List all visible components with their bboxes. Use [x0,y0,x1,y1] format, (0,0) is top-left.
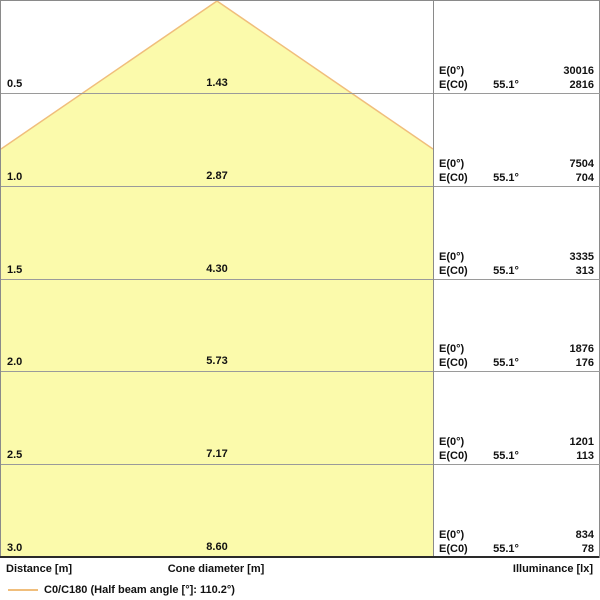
e0-label: E(0°) [439,529,464,541]
distance-value: 0.5 [7,78,22,90]
distance-value: 2.0 [7,356,22,368]
e0-value: 7504 [494,158,594,170]
ec0-value: 78 [494,543,594,555]
cone-diameter-value: 8.60 [117,541,317,553]
distance-value: 3.0 [7,542,22,554]
chart-area: 0.51.43E(0°)30016E(C0)55.1°28161.02.87E(… [0,0,600,558]
cone-diameter-axis-label: Cone diameter [m] [116,563,316,575]
e0-value: 1876 [494,343,594,355]
ec0-value: 176 [494,357,594,369]
cone-diameter-value: 1.43 [117,77,317,89]
e0-value: 1201 [494,436,594,448]
illuminance-axis-label: Illuminance [lx] [493,563,593,575]
grid-line [1,186,600,187]
e0-label: E(0°) [439,343,464,355]
ec0-label: E(C0) [439,543,468,555]
grid-line [1,464,600,465]
e0-label: E(0°) [439,436,464,448]
grid-line [1,371,600,372]
ec0-value: 704 [494,172,594,184]
e0-value: 3335 [494,251,594,263]
ec0-label: E(C0) [439,450,468,462]
e0-label: E(0°) [439,65,464,77]
ec0-label: E(C0) [439,172,468,184]
bottom-axis-line [0,556,599,558]
legend: C0/C180 (Half beam angle [°]: 110.2°) [0,581,600,599]
cone-diameter-value: 5.73 [117,355,317,367]
legend-line-swatch [8,589,38,591]
distance-value: 1.0 [7,171,22,183]
e0-value: 834 [494,529,594,541]
legend-label: C0/C180 (Half beam angle [°]: 110.2°) [44,584,235,596]
cone-diameter-value: 2.87 [117,170,317,182]
panel-divider [433,1,434,558]
ec0-label: E(C0) [439,357,468,369]
e0-label: E(0°) [439,158,464,170]
cone-diagram: 0.51.43E(0°)30016E(C0)55.1°28161.02.87E(… [0,0,600,600]
e0-value: 30016 [494,65,594,77]
ec0-value: 113 [494,450,594,462]
ec0-value: 313 [494,265,594,277]
distance-value: 2.5 [7,449,22,461]
ec0-label: E(C0) [439,265,468,277]
distance-value: 1.5 [7,264,22,276]
distance-axis-label: Distance [m] [6,563,72,575]
ec0-label: E(C0) [439,79,468,91]
grid-line [1,279,600,280]
ec0-value: 2816 [494,79,594,91]
cone-diameter-value: 4.30 [117,263,317,275]
cone-diameter-value: 7.17 [117,448,317,460]
grid-line [1,93,600,94]
e0-label: E(0°) [439,251,464,263]
